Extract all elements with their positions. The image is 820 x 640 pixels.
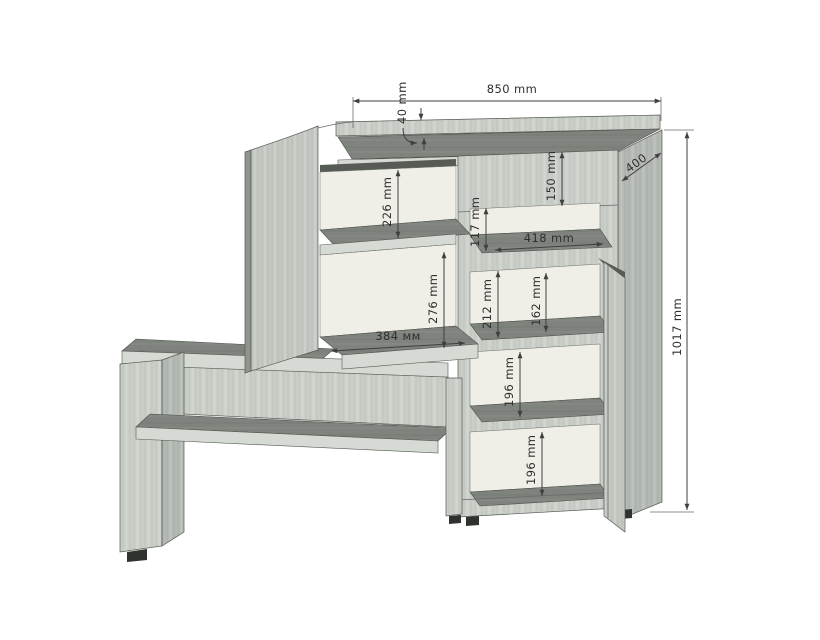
dim-212-label: 212 mm bbox=[480, 279, 494, 329]
left-door-edge bbox=[245, 150, 251, 373]
furniture-drawing: 850 mm 40 mm 400 1017 mm 150 mm bbox=[0, 0, 820, 640]
left-door-panel bbox=[251, 126, 318, 371]
dim-196-lower-label: 196 mm bbox=[524, 435, 538, 485]
dim-226-label: 226 mm bbox=[380, 177, 394, 227]
bench bbox=[120, 339, 462, 562]
dim-850-label: 850 mm bbox=[487, 82, 537, 96]
right-cabinet-foot-left bbox=[466, 516, 479, 526]
bench-right-foot bbox=[449, 515, 461, 524]
dim-40-label: 40 mm bbox=[395, 81, 409, 124]
dim-418-label: 418 mm bbox=[524, 231, 574, 245]
dim-162-label: 162 mm bbox=[529, 276, 543, 326]
bench-right-leg bbox=[446, 378, 462, 516]
opening-b-back bbox=[470, 344, 600, 406]
dim-1017-label: 1017 mm bbox=[670, 298, 684, 356]
dim-276-label: 276 mm bbox=[426, 274, 440, 324]
right-cabinet bbox=[458, 130, 662, 532]
technical-drawing-page: 850 mm 40 mm 400 1017 mm 150 mm bbox=[0, 0, 820, 640]
dim-384-label: 384 мм bbox=[375, 329, 420, 343]
bench-left-leg-side bbox=[162, 352, 184, 546]
bench-left-foot bbox=[127, 549, 147, 562]
dim-150-label: 150 mm bbox=[544, 151, 558, 201]
bench-left-leg bbox=[120, 360, 162, 552]
dim-196-upper-label: 196 mm bbox=[502, 357, 516, 407]
dim-117-label: 117 mm bbox=[468, 197, 482, 247]
left-door-open bbox=[245, 126, 318, 373]
right-door-panel bbox=[604, 262, 625, 532]
